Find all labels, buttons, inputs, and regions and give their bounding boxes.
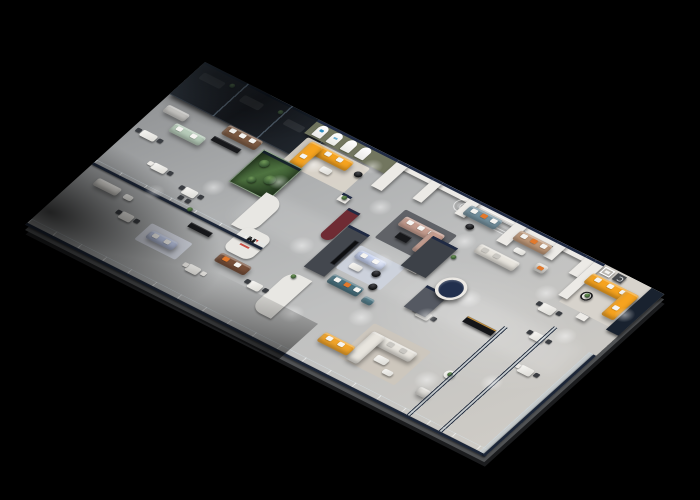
sofa-pillow (417, 225, 426, 231)
sofa-pillow (480, 213, 489, 219)
sofa-pillow (372, 259, 381, 265)
terrarium-plant (245, 175, 258, 184)
sofa-pillow (336, 157, 345, 163)
sofa-pillow (163, 239, 172, 245)
sofa-pillow (222, 256, 231, 262)
sofa-pillow (325, 335, 334, 341)
sofa-pillow (337, 341, 346, 347)
sofa-pillow (530, 238, 539, 244)
sofa-pillow (490, 218, 499, 224)
terrarium-plant (261, 174, 279, 186)
sofa-pillow (470, 208, 479, 214)
sofa-pillow (333, 277, 342, 283)
sofa-pillow (248, 138, 257, 144)
sofa-pillow (239, 133, 248, 139)
sofa-pillow (324, 151, 333, 157)
sofa-pillow (387, 341, 396, 347)
sofa-pillow (406, 220, 415, 226)
sofa-pillow (594, 277, 603, 283)
sofa-pillow (520, 233, 529, 239)
sofa-pillow (360, 253, 369, 259)
sofa-pillow (152, 233, 161, 239)
sofa-pillow (606, 283, 615, 289)
sofa-pillow (353, 287, 362, 293)
sofa-pillow (399, 348, 408, 354)
sofa-pillow (233, 262, 242, 268)
sofa-pillow (190, 133, 199, 139)
sofa-pillow (612, 305, 621, 311)
sofa-pillow (229, 128, 238, 134)
terrarium-plant (257, 158, 272, 168)
sofa-pillow (299, 153, 308, 159)
render-canvas (0, 0, 700, 500)
sofa-pillow (493, 253, 502, 259)
showroom-floorplan (20, 62, 668, 464)
sofa-pillow (540, 243, 549, 249)
sofa-pillow (536, 265, 545, 271)
sofa-pillow (175, 126, 184, 132)
sofa-pillow (343, 282, 352, 288)
brand-logo-caption (240, 243, 250, 249)
art-curve-motif (615, 276, 625, 283)
sofa-pillow (481, 247, 490, 253)
